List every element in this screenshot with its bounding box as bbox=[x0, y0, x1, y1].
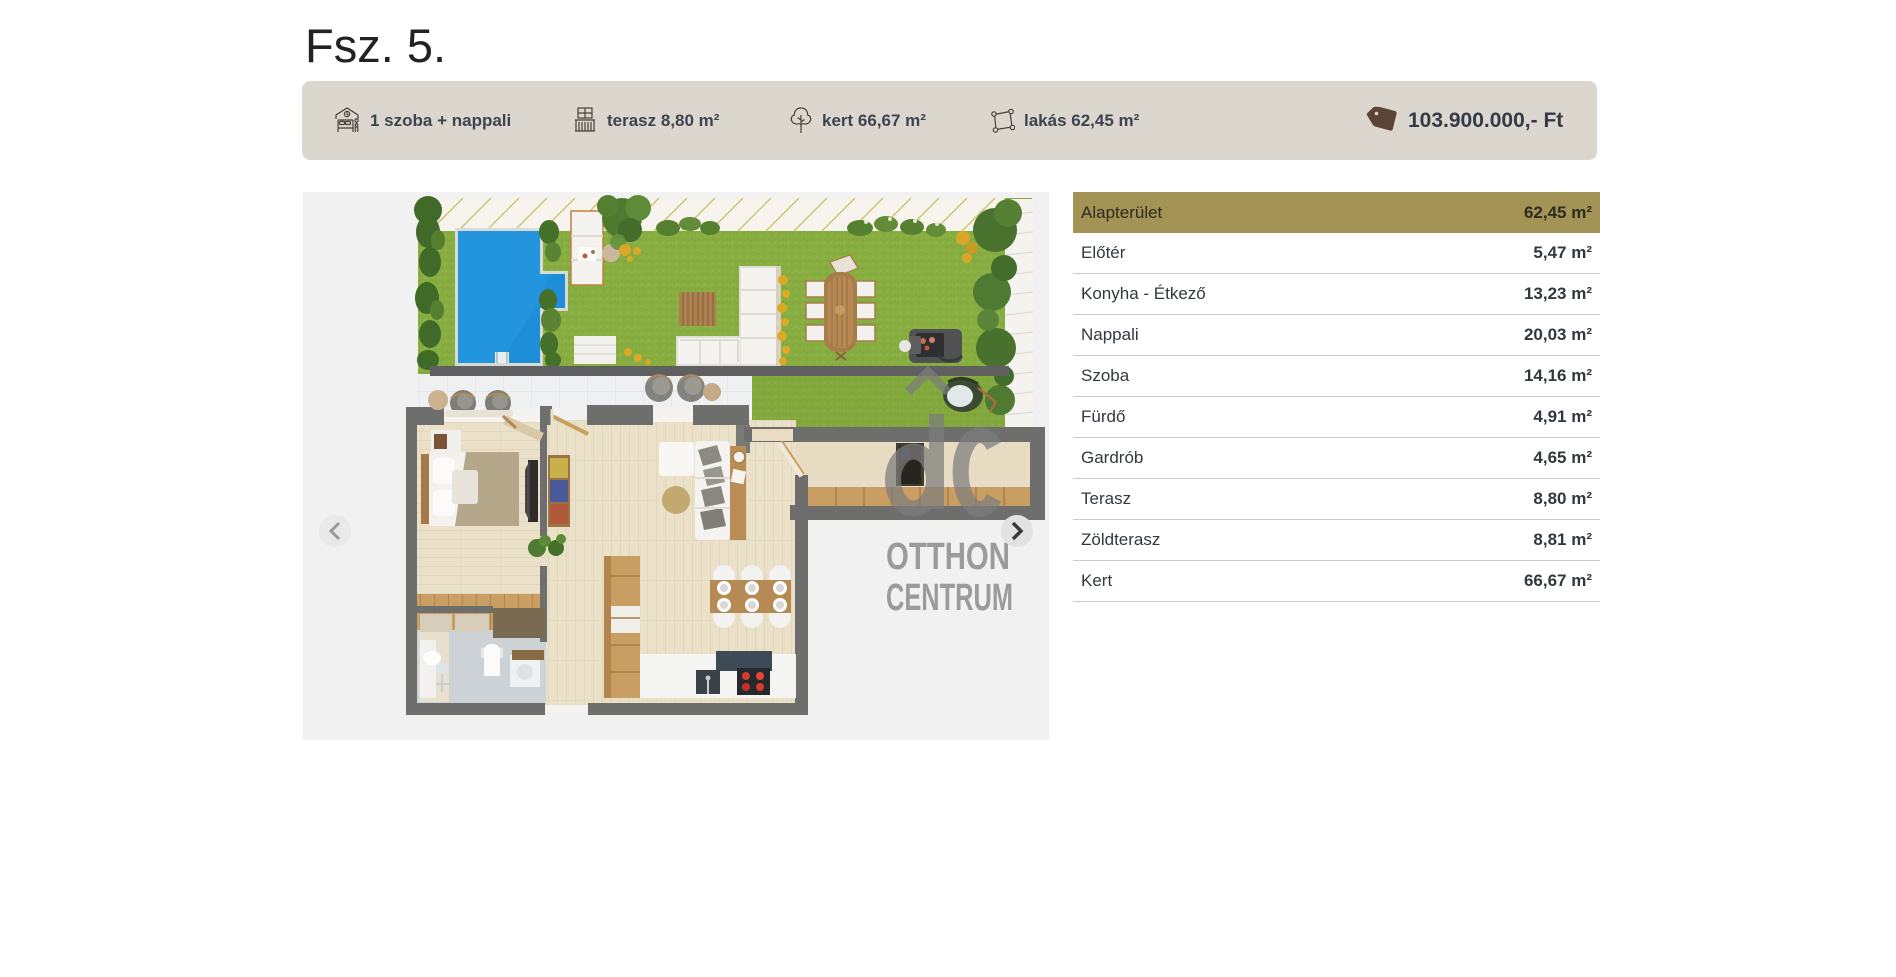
svg-text:CENTRUM: CENTRUM bbox=[886, 577, 1013, 619]
svg-text:OTTHON: OTTHON bbox=[886, 536, 1010, 578]
